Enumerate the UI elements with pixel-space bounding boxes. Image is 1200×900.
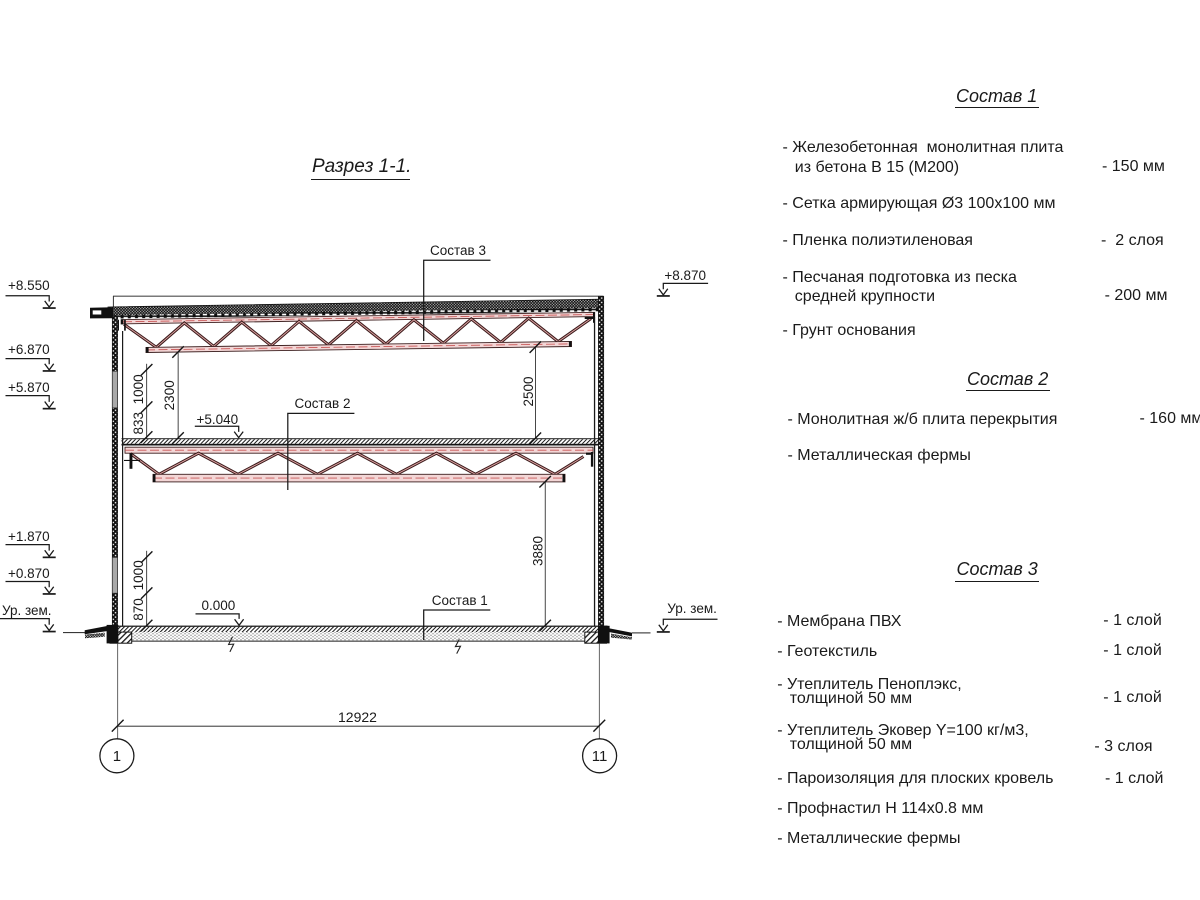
svg-text:11: 11 bbox=[592, 748, 608, 765]
svg-text:833: 833 bbox=[131, 412, 146, 435]
svg-text:2300: 2300 bbox=[162, 380, 177, 410]
svg-text:1000: 1000 bbox=[131, 374, 146, 404]
svg-text:3880: 3880 bbox=[531, 536, 546, 566]
svg-text:2500: 2500 bbox=[521, 376, 536, 406]
svg-text:1000: 1000 bbox=[131, 560, 146, 590]
svg-text:870: 870 bbox=[131, 598, 146, 621]
svg-text:1: 1 bbox=[113, 748, 121, 765]
